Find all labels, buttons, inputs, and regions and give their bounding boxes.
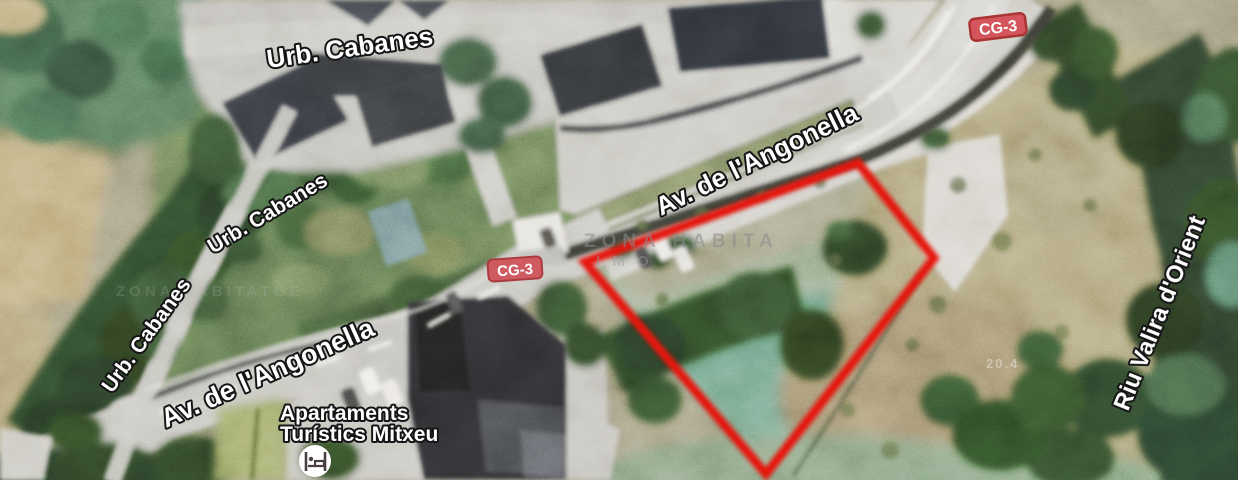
svg-text:Turístics Mitxeu: Turístics Mitxeu — [280, 423, 438, 446]
svg-text:Apartaments: Apartaments — [280, 402, 408, 425]
svg-text:ZONA HABITATGE: ZONA HABITATGE — [116, 283, 303, 300]
svg-text:20.4: 20.4 — [986, 356, 1019, 371]
svg-text:I M O: I M O — [596, 253, 653, 270]
svg-text:CG-3: CG-3 — [497, 261, 534, 280]
svg-text:ZONA HABITA: ZONA HABITA — [584, 231, 779, 252]
